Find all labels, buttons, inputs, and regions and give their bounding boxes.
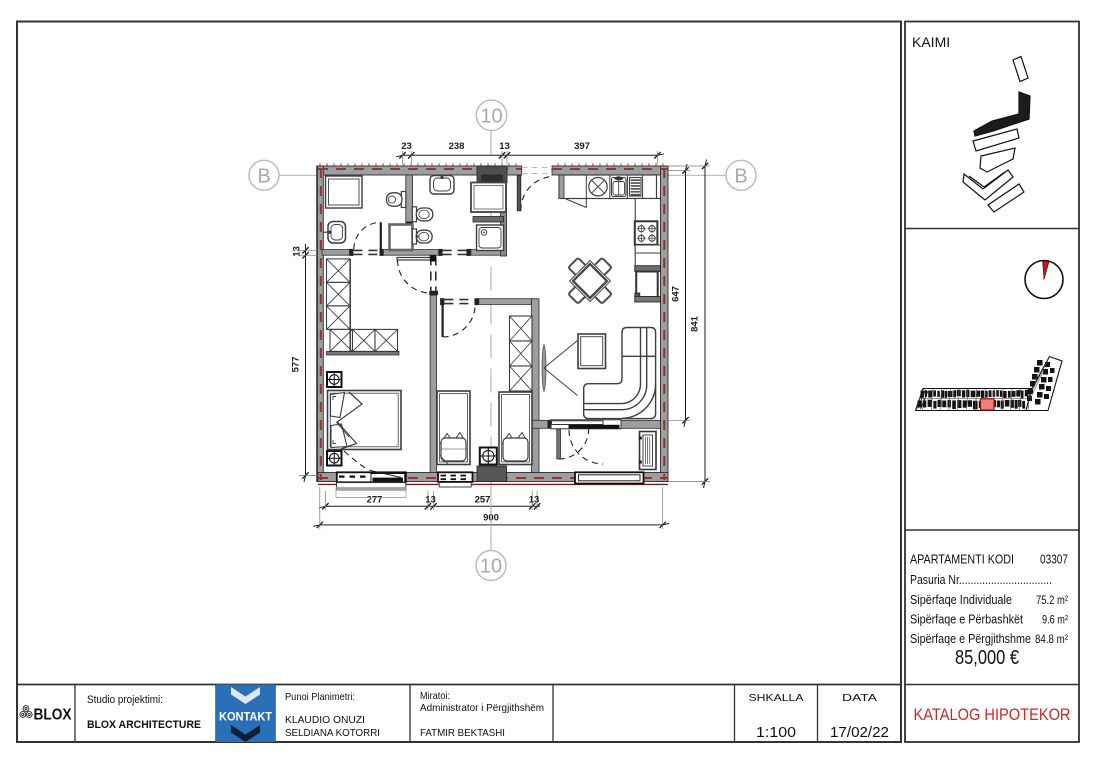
- svg-text:Pasuria Nr....................: Pasuria Nr..............................…: [910, 573, 1052, 587]
- svg-text:SELDIANA KOTORRI: SELDIANA KOTORRI: [285, 727, 380, 739]
- svg-text:17/02/22: 17/02/22: [830, 725, 889, 741]
- svg-text:KONTAKT: KONTAKT: [219, 712, 272, 724]
- svg-text:B: B: [257, 165, 270, 187]
- svg-text:277: 277: [367, 495, 383, 506]
- svg-text:13: 13: [292, 246, 303, 257]
- svg-text:23: 23: [401, 141, 412, 152]
- svg-text:577: 577: [291, 357, 302, 373]
- svg-text:84.8 m²: 84.8 m²: [1035, 632, 1068, 646]
- svg-text:APARTAMENTI KODI: APARTAMENTI KODI: [910, 552, 1014, 567]
- svg-text:Punoi Planimetri:: Punoi Planimetri:: [285, 691, 355, 703]
- svg-text:13: 13: [425, 495, 436, 506]
- svg-text:SHKALLA: SHKALLA: [749, 692, 804, 704]
- svg-text:10: 10: [480, 556, 502, 578]
- svg-text:75.2 m²: 75.2 m²: [1036, 593, 1068, 607]
- svg-text:DATA: DATA: [842, 692, 877, 704]
- svg-text:Sipërfaqe e Përbashkët: Sipërfaqe e Përbashkët: [910, 613, 1023, 627]
- svg-text:841: 841: [690, 315, 701, 332]
- svg-text:238: 238: [449, 141, 465, 152]
- svg-text:FATMIR BEKTASHI: FATMIR BEKTASHI: [420, 727, 505, 739]
- svg-text:397: 397: [574, 141, 590, 152]
- svg-text:KATALOG HIPOTEKOR: KATALOG HIPOTEKOR: [914, 706, 1071, 724]
- svg-text:9.6 m²: 9.6 m²: [1042, 613, 1068, 627]
- svg-text:85,000 €: 85,000 €: [955, 647, 1019, 669]
- svg-text:Studio projektimi:: Studio projektimi:: [87, 694, 163, 706]
- svg-text:BLOX ARCHITECTURE: BLOX ARCHITECTURE: [87, 719, 201, 731]
- svg-text:Sipërfaqe Individuale: Sipërfaqe Individuale: [910, 593, 1012, 607]
- svg-text:Sipërfaqe e Përgjithshme: Sipërfaqe e Përgjithshme: [910, 632, 1031, 646]
- svg-text:BLOX: BLOX: [34, 707, 73, 724]
- svg-text:03307: 03307: [1040, 552, 1068, 567]
- svg-text:Administrator i Përgjithshëm: Administrator i Përgjithshëm: [420, 702, 544, 714]
- svg-text:13: 13: [529, 495, 540, 506]
- svg-text:257: 257: [475, 495, 491, 506]
- svg-text:Miratoi:: Miratoi:: [420, 690, 450, 702]
- svg-text:B: B: [734, 165, 747, 187]
- svg-text:13: 13: [499, 141, 510, 152]
- svg-text:647: 647: [671, 286, 682, 302]
- svg-text:KAIMI: KAIMI: [912, 34, 950, 50]
- svg-text:1:100: 1:100: [756, 725, 796, 741]
- svg-text:10: 10: [480, 105, 502, 127]
- svg-text:KLAUDIO ONUZI: KLAUDIO ONUZI: [285, 714, 365, 726]
